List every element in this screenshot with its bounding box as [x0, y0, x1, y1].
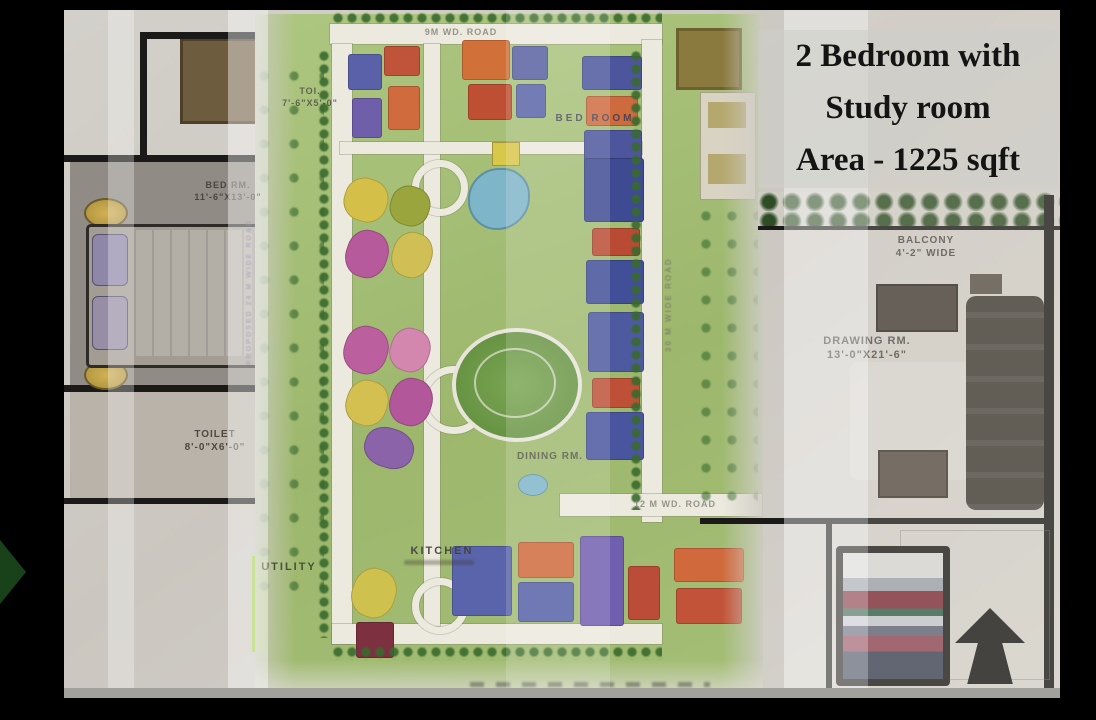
headline-line1: 2 Bedroom with	[758, 30, 1058, 82]
room-label-kitchen: KITCHEN	[392, 544, 492, 558]
pillow	[92, 296, 128, 350]
headline-panel: 2 Bedroom with Study room Area - 1225 sq…	[758, 30, 1058, 188]
sofa	[966, 296, 1044, 510]
room-label-dining: DINING RM.	[490, 450, 610, 463]
tv-unit	[876, 284, 958, 332]
park-oval-inner-path	[474, 348, 556, 418]
room-dims-text: 4'-2" WIDE	[856, 247, 996, 260]
room-dims-text: 13'-0"X21'-6"	[792, 348, 942, 362]
headline-line2: Study room	[758, 82, 1058, 134]
room-label-text: DRAWING RM.	[792, 334, 942, 348]
room-label-utility: UTILITY	[246, 560, 332, 574]
room-label-toi-top: TOI. 7'-6"X5'-0"	[268, 86, 352, 109]
siteplan-caption-blur	[470, 682, 710, 687]
headline-line3: Area - 1225 sqft	[758, 134, 1058, 186]
building-cluster-lower-left	[344, 322, 436, 472]
wall-top-left	[140, 32, 147, 158]
video-frame: BED RM. 11'-6"X13'-0" TOILET 8'-0"X6'-0"…	[0, 0, 1096, 720]
siteplan-fade-right	[722, 14, 763, 700]
letterbox-top	[0, 0, 1096, 10]
road-label-top: 9M WD. ROAD	[396, 27, 526, 37]
room-label-text: KITCHEN	[392, 544, 492, 558]
room-label-toilet: TOILET 8'-0"X6'-0"	[150, 428, 280, 454]
wall-toilet-bottom	[64, 498, 266, 504]
room-label-text: TOI.	[268, 86, 352, 98]
sofa-side-table	[970, 274, 1002, 294]
room-label-balcony: BALCONY 4'-2" WIDE	[856, 234, 996, 260]
coffee-table	[878, 450, 948, 498]
room-label-text: UTILITY	[246, 560, 332, 574]
road-label-right-vertical: 30 M WIDE ROAD	[664, 222, 673, 352]
kitchen-dims-blur	[404, 560, 474, 565]
tree-row-top	[332, 12, 662, 24]
room-label-text: DINING RM.	[490, 450, 610, 463]
wall-bedroom-top	[64, 155, 266, 162]
room-label-text: BED ROOM	[505, 112, 685, 125]
room-dims-text: 8'-0"X6'-0"	[150, 441, 280, 454]
balcony-plants	[758, 192, 1060, 226]
building-cluster-top-left	[348, 46, 424, 142]
blanket	[134, 230, 252, 356]
building-cluster-mid-left	[344, 178, 436, 286]
wall-balcony	[758, 226, 1060, 230]
room-dims-text: 7'-6"X5'-0"	[268, 98, 352, 110]
bed-striped	[836, 546, 950, 686]
siteplan-fade-left	[255, 14, 295, 700]
road-label-mid: 12 M WD. ROAD	[600, 499, 750, 509]
road-label-left-vertical: PROPOSED 24 M WIDE ROAD	[246, 205, 253, 365]
wall-drawing-bottom	[700, 518, 1044, 524]
room-label-bed-room-top: BED ROOM	[505, 112, 685, 125]
pillow	[92, 234, 128, 286]
bottom-gray-strip	[64, 688, 1060, 698]
pond-lower	[518, 474, 548, 496]
letterbox-left	[0, 0, 64, 720]
sports-court	[492, 142, 520, 166]
wardrobe-block	[180, 38, 266, 124]
wall-bedroom2-left	[826, 524, 832, 700]
room-dims-text: 11'-6"X13'-0"	[168, 192, 288, 204]
room-label-bed-rm: BED RM. 11'-6"X13'-0"	[168, 180, 288, 203]
letterbox-bottom	[0, 698, 1096, 720]
letterbox-right	[1060, 0, 1096, 720]
tree-row-bottom	[332, 646, 662, 660]
room-label-drawing-rm: DRAWING RM. 13'-0"X21'-6"	[792, 334, 942, 363]
room-label-text: TOILET	[150, 428, 280, 441]
room-label-text: BED RM.	[168, 180, 288, 192]
room-label-text: BALCONY	[856, 234, 996, 247]
